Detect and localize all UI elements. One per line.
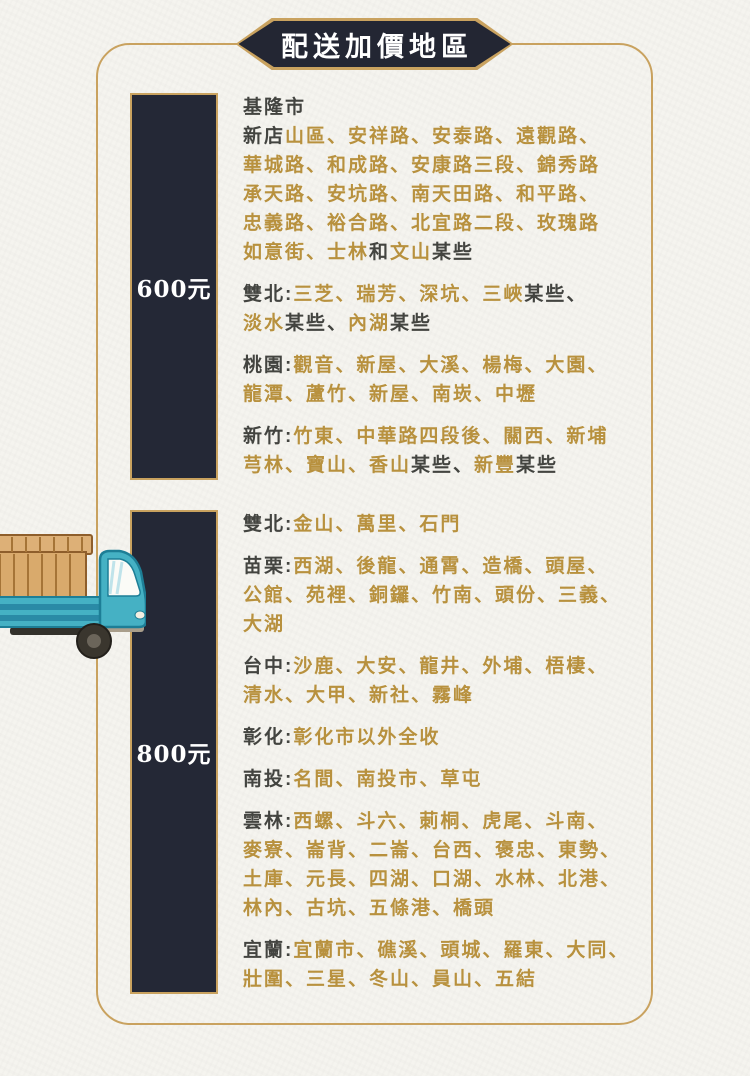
area-text-dark: 某些、 xyxy=(285,313,348,334)
area-text-gold: 宜蘭市、礁溪、頭城、羅東、大同、 壯圍、三星、冬山、員山、五結 xyxy=(243,940,629,990)
area-line: 宜蘭:宜蘭市、礁溪、頭城、羅東、大同、 壯圍、三星、冬山、員山、五結 xyxy=(243,936,651,994)
area-text-dark: 雙北: xyxy=(243,514,293,535)
area-text-gold: 觀音、新屋、大溪、楊梅、大園、 龍潭、蘆竹、新屋、南崁、中壢 xyxy=(243,355,608,405)
area-text-dark: 桃園: xyxy=(243,355,293,376)
area-text-dark: 某些 xyxy=(432,242,474,263)
area-text-dark: 和 xyxy=(369,242,390,263)
area-text-dark: 彰化: xyxy=(243,727,293,748)
area-text-dark: 雲林: xyxy=(243,811,293,832)
area-text-dark: 某些、 xyxy=(411,455,474,476)
area-text-dark: 某些 xyxy=(516,455,558,476)
area-text-gold: 西湖、後龍、通霄、造橋、頭屋、 公館、苑裡、銅鑼、竹南、頭份、三義、 大湖 xyxy=(243,556,621,635)
delivery-truck-icon xyxy=(0,527,146,663)
area-list: 基隆市新店山區、安祥路、安泰路、遠觀路、 華城路、和成路、安康路三段、錦秀路 承… xyxy=(218,93,651,480)
area-line: 雙北:三芝、瑞芳、深坑、三峽某些、 淡水某些、內湖某些 xyxy=(243,280,651,338)
area-text-gold: 內湖 xyxy=(348,313,390,334)
area-text-gold: 彰化市以外全收 xyxy=(293,727,440,748)
area-line: 新店山區、安祥路、安泰路、遠觀路、 華城路、和成路、安康路三段、錦秀路 承天路、… xyxy=(243,122,651,267)
area-line: 雲林:西螺、斗六、莿桐、虎尾、斗南、 麥寮、崙背、二崙、台西、褒忠、東勢、 土庫… xyxy=(243,807,651,923)
area-line: 南投:名間、南投市、草屯 xyxy=(243,765,651,794)
area-line: 台中:沙鹿、大安、龍井、外埔、梧棲、 清水、大甲、新社、霧峰 xyxy=(243,652,651,710)
area-line: 雙北:金山、萬里、石門 xyxy=(243,510,651,539)
area-text-dark: 某些 xyxy=(390,313,432,334)
area-text-dark: 新竹: xyxy=(243,426,293,447)
title-banner: 配送加價地區 xyxy=(236,18,514,70)
area-line: 桃園:觀音、新屋、大溪、楊梅、大園、 龍潭、蘆竹、新屋、南崁、中壢 xyxy=(243,351,651,409)
area-text-gold: 名間、南投市、草屯 xyxy=(293,769,482,790)
area-text-dark: 新店 xyxy=(243,126,285,147)
price-label: 600元 xyxy=(136,270,211,304)
area-line: 新竹:竹東、中華路四段後、關西、新埔 芎林、寶山、香山某些、新豐某些 xyxy=(243,422,651,480)
price-label: 800元 xyxy=(136,735,211,769)
area-text-dark: 南投: xyxy=(243,769,293,790)
price-section: 800元雙北:金山、萬里、石門苗栗:西湖、後龍、通霄、造橋、頭屋、 公館、苑裡、… xyxy=(130,510,651,994)
area-text-gold: 新豐 xyxy=(474,455,516,476)
title-banner-inner: 配送加價地區 xyxy=(239,21,511,67)
area-line: 基隆市 xyxy=(243,93,651,122)
area-text-dark: 台中: xyxy=(243,656,293,677)
price-sections: 600元基隆市新店山區、安祥路、安泰路、遠觀路、 華城路、和成路、安康路三段、錦… xyxy=(130,93,651,994)
area-text-dark: 基隆市 xyxy=(243,97,306,118)
area-text-gold: 西螺、斗六、莿桐、虎尾、斗南、 麥寮、崙背、二崙、台西、褒忠、東勢、 土庫、元長… xyxy=(243,811,621,919)
area-text-dark: 某些、 xyxy=(524,284,587,305)
area-line: 彰化:彰化市以外全收 xyxy=(243,723,651,752)
area-text-gold: 三芝、瑞芳、深坑、三峽 xyxy=(293,284,524,305)
content-frame: 配送加價地區 600元基隆市新店山區、安祥路、安泰路、遠觀路、 華城路、和成路、… xyxy=(96,43,653,1025)
area-text-gold: 淡水 xyxy=(243,313,285,334)
area-text-dark: 宜蘭: xyxy=(243,940,293,961)
area-text-dark: 雙北: xyxy=(243,284,293,305)
price-section: 600元基隆市新店山區、安祥路、安泰路、遠觀路、 華城路、和成路、安康路三段、錦… xyxy=(130,93,651,480)
area-text-dark: 苗栗: xyxy=(243,556,293,577)
area-list: 雙北:金山、萬里、石門苗栗:西湖、後龍、通霄、造橋、頭屋、 公館、苑裡、銅鑼、竹… xyxy=(218,510,651,994)
area-text-gold: 沙鹿、大安、龍井、外埔、梧棲、 清水、大甲、新社、霧峰 xyxy=(243,656,608,706)
page-title: 配送加價地區 xyxy=(276,25,473,64)
area-line: 苗栗:西湖、後龍、通霄、造橋、頭屋、 公館、苑裡、銅鑼、竹南、頭份、三義、 大湖 xyxy=(243,552,651,639)
price-badge: 600元 xyxy=(130,93,218,480)
area-text-gold: 文山 xyxy=(390,242,432,263)
area-text-gold: 金山、萬里、石門 xyxy=(293,514,461,535)
